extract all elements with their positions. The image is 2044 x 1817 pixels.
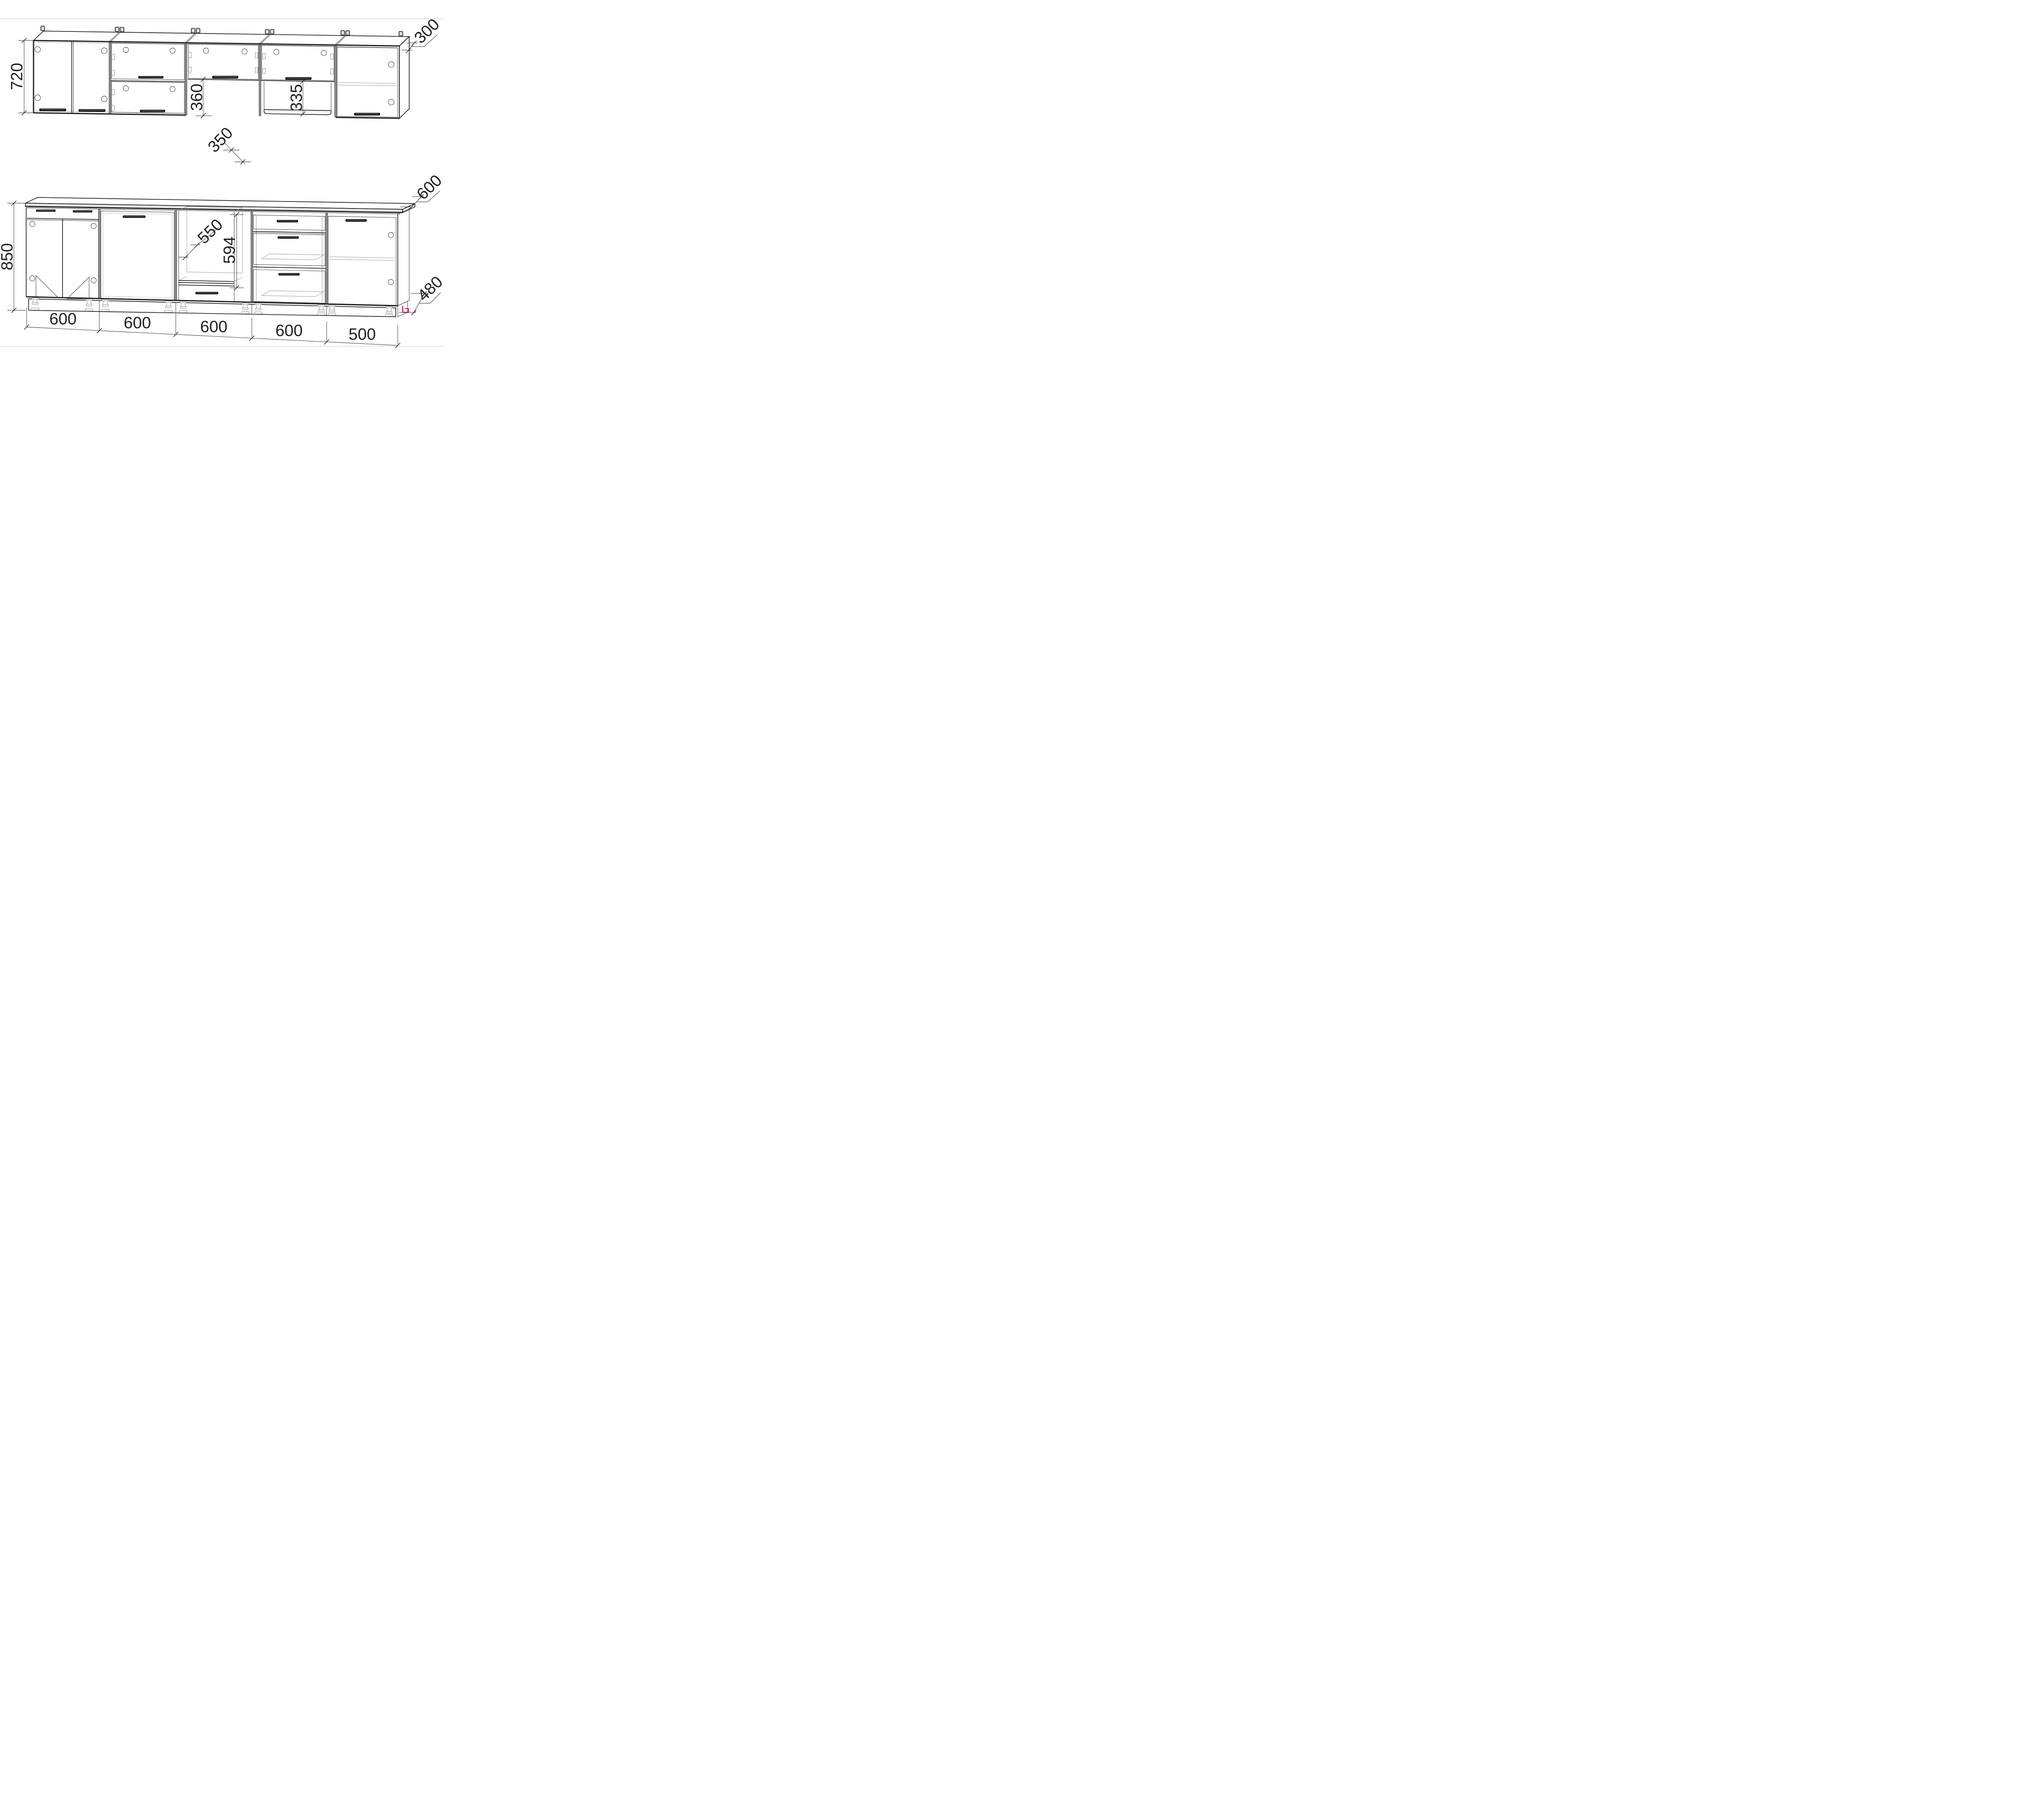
hinge-cup-icon: [35, 95, 40, 101]
hinge-cup-icon: [101, 96, 107, 102]
dim-hood-gap-360: 360: [188, 77, 212, 118]
flap-hinge-icons: [112, 54, 115, 111]
flap-hinge-icons: [189, 52, 258, 73]
dim-label-width-1: 600: [49, 310, 77, 328]
hinge-cup-icon: [388, 99, 394, 105]
drawer-handle: [195, 292, 218, 294]
base-cabinet-1: [27, 210, 99, 299]
technical-drawing: 720 300 360 350 335: [0, 0, 444, 363]
door-handle: [123, 215, 146, 218]
door-handle: [345, 219, 367, 222]
base-cabinet-2: [101, 211, 174, 301]
dim-niche-height-335: 335: [288, 79, 310, 117]
drawer-handle: [36, 210, 56, 212]
hinge-cup-icon: [170, 87, 175, 92]
base-cabinet-4: [253, 215, 326, 303]
dim-label-350: 350: [204, 124, 236, 156]
base-cabinet-5: [328, 216, 396, 305]
dim-oven-width-550: 550: [179, 215, 226, 260]
hinge-cup-icon: [170, 48, 175, 54]
dim-depth-600: 600: [400, 171, 444, 210]
wall-cabinet-3: [188, 44, 259, 81]
drawer-handle: [73, 210, 92, 213]
dim-label-600-depth: 600: [413, 171, 444, 203]
flap-hinge-icons: [263, 54, 334, 74]
hinge-cup-icon: [388, 62, 394, 67]
wall-mount-bracket-icons: [41, 26, 403, 36]
dim-depth-300: 300: [401, 15, 443, 53]
dim-label-width-3: 600: [200, 318, 228, 336]
dim-label-720: 720: [8, 63, 26, 90]
hinge-cup-icon: [30, 276, 35, 281]
drawer-handle: [278, 273, 300, 276]
hinge-cup-icon: [123, 47, 129, 53]
drawing-page: 720 300 360 350 335: [0, 0, 444, 363]
drawer-handle: [277, 220, 298, 222]
door-handle: [140, 110, 165, 112]
door-handle: [39, 109, 66, 112]
hinge-cup-icon: [388, 280, 394, 285]
dim-label-360: 360: [188, 84, 206, 111]
door-handle: [78, 109, 105, 112]
dim-label-width-2: 600: [124, 314, 151, 332]
hinge-cup-icon: [30, 222, 35, 227]
dim-label-width-4: 600: [276, 322, 303, 340]
door-handle: [212, 76, 238, 79]
dim-label-594: 594: [221, 237, 239, 264]
hinge-cup-icon: [204, 48, 209, 54]
wall-cabinet-1: [35, 41, 107, 113]
hinge-cup-icon: [321, 50, 327, 56]
hinge-cup-icon: [91, 278, 96, 283]
dim-label-335: 335: [288, 84, 306, 112]
dim-height-850: 850: [0, 201, 25, 313]
dim-label-width-5: 500: [349, 325, 376, 343]
wall-cabinet-row: [34, 26, 409, 118]
hinge-cup-icon: [242, 49, 247, 54]
wall-cabinet-5: [337, 47, 398, 117]
wall-cabinet-2: [111, 43, 185, 113]
hinge-cup-icon: [388, 233, 394, 238]
hinge-cup-icon: [35, 47, 40, 52]
door-handle: [138, 76, 164, 78]
corner-brace: [67, 277, 89, 299]
drawer-box: [262, 291, 324, 297]
dim-label-850: 850: [0, 243, 16, 271]
base-cabinet-row: [25, 197, 415, 317]
door-handle: [285, 77, 312, 80]
dim-height-720: 720: [8, 38, 36, 115]
hinge-cup-icon: [91, 224, 96, 229]
hinge-cup-icon: [123, 86, 129, 91]
dim-shelf-depth-350: 350: [204, 124, 251, 164]
hinge-cup-icon: [101, 48, 107, 54]
door-handle: [354, 113, 380, 116]
dim-label-480: 480: [414, 273, 444, 305]
hinge-cup-icon: [274, 49, 279, 55]
corner-brace: [36, 276, 58, 298]
dim-label-300: 300: [411, 15, 443, 47]
drawer-box: [262, 254, 324, 260]
drawer-handle: [278, 236, 299, 239]
